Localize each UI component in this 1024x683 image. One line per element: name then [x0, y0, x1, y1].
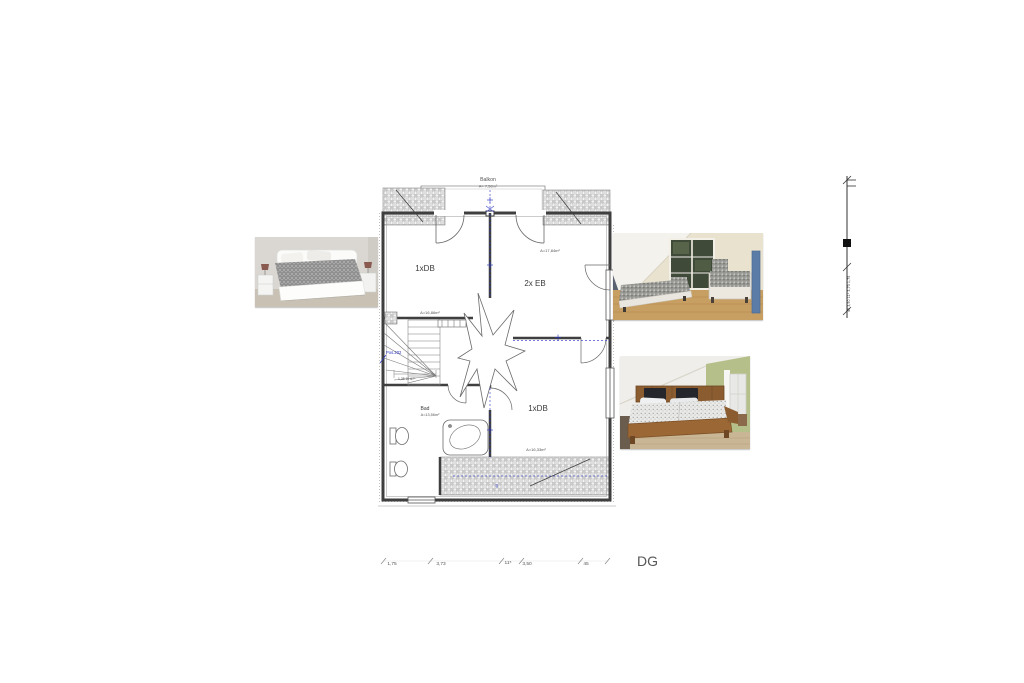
- room-bottom-right-name: 1xDB: [528, 404, 548, 413]
- bottom-dimension-chain: 1,75 3,73 11⁵ 3,50 45 DG: [375, 548, 665, 574]
- section-marker: [843, 239, 851, 247]
- bath-name: Bad: [421, 406, 430, 412]
- nightstand: [738, 414, 747, 426]
- bath-area: A=13,56m²: [421, 413, 440, 417]
- dim-2: 3,73: [436, 561, 446, 567]
- room-top-left-area: A=16,86m²: [420, 310, 440, 315]
- photo-bedroom-two-single-beds: [613, 233, 763, 320]
- room-top-right-name: 2x EB: [524, 279, 545, 288]
- stair-dimensions-text: 1,35 10 67⁵: [398, 377, 416, 381]
- vertical-dimension-chain: 45 3,50 11⁵ 3,73 1,75: [832, 172, 860, 324]
- lamp-left: [261, 264, 269, 270]
- position-label: Pos.202: [386, 350, 402, 355]
- room-top-right-area: A=17,84m²: [540, 248, 560, 253]
- hall-star-shape: [458, 293, 525, 408]
- lamp-right: [364, 262, 372, 268]
- dim-3: 11⁵: [505, 560, 512, 566]
- photo-left-scene: [255, 237, 378, 307]
- pillow: [307, 250, 332, 262]
- photo-top-right-scene: [613, 233, 763, 320]
- vertical-dims-text: 45 3,50 11⁵ 3,73 1,75: [847, 276, 851, 312]
- room-bottom-right-area: A=16,33m²: [526, 447, 546, 452]
- balcony-name: Balkon: [480, 177, 496, 183]
- floor-label: DG: [637, 553, 658, 569]
- balcony-area: A= 7,58m²: [479, 184, 498, 189]
- photo-mid-right-scene: [620, 356, 750, 449]
- nightstand-left: [258, 275, 273, 295]
- photo-bedroom-wooden-double-bed: [620, 356, 750, 449]
- floor-plan-drawing: Balkon A= 7,58m² 1xDB A=16,86m² 2x EB A=…: [378, 170, 618, 515]
- hatch-width-label: 40: [495, 484, 499, 488]
- room-top-left-name: 1xDB: [415, 264, 435, 273]
- blue-door: [752, 251, 760, 313]
- dim-5: 45: [583, 561, 589, 567]
- photo-bedroom-white-double-bed: [255, 237, 378, 307]
- page: Balkon A= 7,58m² 1xDB A=16,86m² 2x EB A=…: [0, 0, 1024, 683]
- dim-1: 1,75: [387, 561, 397, 567]
- dim-4: 3,50: [522, 561, 532, 567]
